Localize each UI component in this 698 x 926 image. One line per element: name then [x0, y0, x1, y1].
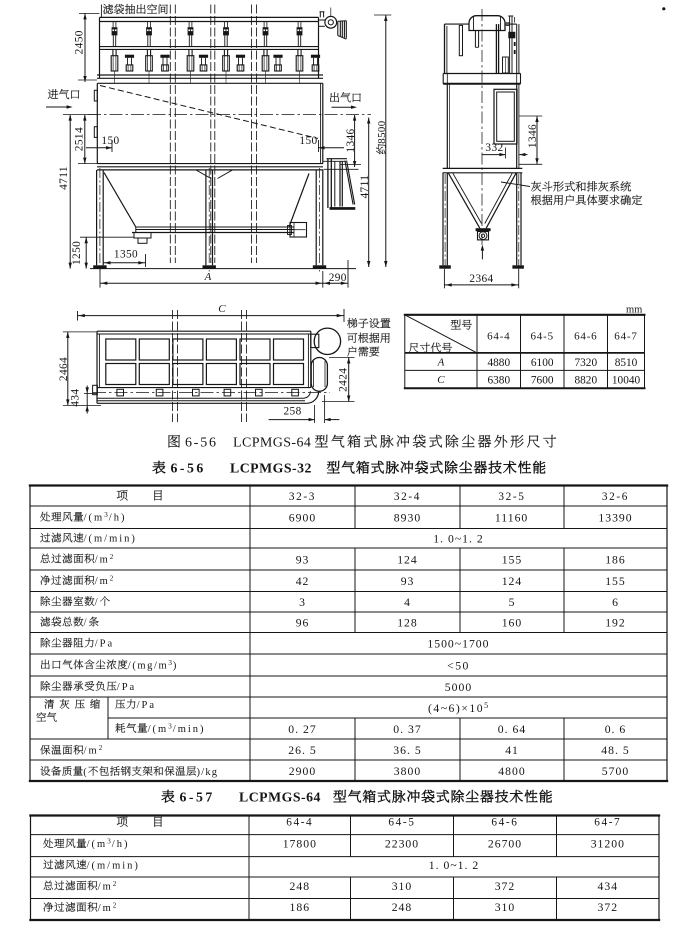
- svg-text:17800: 17800: [283, 838, 317, 851]
- svg-text:41: 41: [505, 744, 519, 757]
- svg-text:4: 4: [404, 596, 411, 609]
- svg-text:<50: <50: [447, 659, 470, 672]
- svg-text:128: 128: [397, 617, 418, 630]
- svg-text:/: /: [95, 597, 100, 608]
- svg-text:48. 5: 48. 5: [601, 744, 629, 757]
- svg-text:11160: 11160: [495, 512, 528, 525]
- svg-text:)/kg: )/kg: [197, 767, 219, 778]
- svg-text:6900: 6900: [289, 512, 316, 525]
- svg-text:/m: /m: [95, 554, 110, 565]
- svg-text:C: C: [437, 374, 445, 386]
- svg-text:2: 2: [99, 744, 104, 752]
- svg-text:290: 290: [329, 272, 347, 284]
- svg-text:LCPMGS-64: LCPMGS-64: [239, 790, 321, 805]
- svg-text:0. 27: 0. 27: [288, 723, 316, 736]
- svg-text:2900: 2900: [289, 765, 316, 778]
- svg-text:(4~6)×10: (4~6)×10: [428, 702, 484, 715]
- svg-text:5: 5: [484, 701, 489, 710]
- svg-text:26. 5: 26. 5: [288, 744, 316, 757]
- svg-text:93: 93: [401, 575, 415, 588]
- svg-text:6-57: 6-57: [180, 790, 215, 805]
- svg-text:2: 2: [113, 880, 118, 888]
- svg-text:7600: 7600: [531, 375, 554, 387]
- svg-text:0. 6: 0. 6: [605, 723, 627, 736]
- svg-text:13390: 13390: [598, 512, 632, 525]
- svg-text:96: 96: [296, 617, 310, 630]
- svg-text:64-6: 64-6: [491, 817, 518, 829]
- svg-text:186: 186: [290, 901, 311, 914]
- svg-text:6100: 6100: [531, 357, 554, 369]
- svg-text:/(m/min): /(m/min): [84, 534, 137, 545]
- svg-text:/Pa: /Pa: [95, 639, 114, 650]
- svg-text:36. 5: 36. 5: [393, 744, 421, 757]
- svg-text:3: 3: [299, 596, 306, 609]
- svg-text:5000: 5000: [445, 681, 472, 694]
- svg-text:434: 434: [70, 389, 82, 407]
- svg-text:2424: 2424: [337, 368, 349, 392]
- svg-text:32-3: 32-3: [289, 491, 316, 503]
- svg-text:1346: 1346: [527, 124, 539, 148]
- svg-text:LCPMGS-32: LCPMGS-32: [230, 461, 312, 476]
- svg-text:2: 2: [113, 901, 118, 909]
- svg-text:2364: 2364: [469, 273, 493, 285]
- svg-text:258: 258: [284, 406, 302, 418]
- svg-text:8930: 8930: [394, 512, 421, 525]
- svg-text:/(m: /(m: [84, 513, 105, 524]
- svg-text:1346: 1346: [345, 128, 357, 152]
- svg-text:192: 192: [605, 617, 626, 630]
- svg-text:372: 372: [495, 880, 516, 893]
- svg-text:64-7: 64-7: [614, 331, 637, 343]
- svg-text:5: 5: [509, 596, 516, 609]
- svg-text:2: 2: [110, 553, 115, 561]
- svg-text:/: /: [84, 618, 89, 629]
- svg-text:93: 93: [296, 553, 310, 566]
- svg-text:4880: 4880: [488, 357, 511, 369]
- svg-text:32-5: 32-5: [498, 491, 525, 503]
- svg-text:/h): /h): [112, 839, 130, 850]
- svg-text:0. 64: 0. 64: [498, 723, 526, 736]
- svg-text:64-6: 64-6: [574, 331, 597, 343]
- svg-text:10040: 10040: [612, 375, 641, 387]
- svg-text:31200: 31200: [591, 838, 625, 851]
- svg-text:/(m: /(m: [87, 839, 108, 850]
- svg-text:310: 310: [392, 880, 413, 893]
- svg-text:8500: 8500: [376, 120, 388, 143]
- svg-text:64-7: 64-7: [594, 817, 621, 829]
- svg-text:32-6: 32-6: [602, 491, 629, 503]
- svg-text:248: 248: [290, 880, 311, 893]
- svg-text:64-5: 64-5: [531, 331, 554, 343]
- svg-text:/(m/min): /(m/min): [87, 860, 140, 871]
- svg-text:0. 37: 0. 37: [393, 723, 421, 736]
- svg-text:/m: /m: [95, 576, 110, 587]
- svg-text:6: 6: [612, 596, 619, 609]
- svg-text:/m: /m: [98, 903, 113, 914]
- svg-text:32-4: 32-4: [394, 491, 421, 503]
- svg-text:/(mg/m: /(mg/m: [128, 660, 169, 671]
- svg-text:248: 248: [392, 901, 413, 914]
- svg-text:/m: /m: [98, 881, 113, 892]
- svg-text:434: 434: [598, 880, 619, 893]
- svg-text:4711: 4711: [58, 166, 70, 190]
- svg-text:2450: 2450: [74, 30, 86, 54]
- svg-text:3800: 3800: [394, 765, 421, 778]
- svg-text:372: 372: [598, 901, 619, 914]
- svg-text:150: 150: [299, 135, 317, 147]
- svg-text:/Pa: /Pa: [117, 682, 136, 693]
- svg-text:A: A: [204, 271, 212, 283]
- svg-text:1. 0~1. 2: 1. 0~1. 2: [429, 859, 479, 872]
- svg-text:64-4: 64-4: [286, 817, 313, 829]
- svg-text:/Pa: /Pa: [137, 700, 156, 711]
- svg-text:2: 2: [110, 575, 115, 583]
- svg-text:310: 310: [495, 901, 516, 914]
- svg-text:124: 124: [502, 575, 523, 588]
- svg-text:8510: 8510: [615, 357, 638, 369]
- svg-text:155: 155: [605, 575, 626, 588]
- svg-text:160: 160: [502, 617, 523, 630]
- svg-text:/min): /min): [173, 724, 206, 735]
- svg-text:): ): [173, 660, 178, 671]
- svg-text:/(m: /(m: [148, 724, 169, 735]
- svg-text:42: 42: [296, 575, 310, 588]
- svg-text:LCPMGS-64: LCPMGS-64: [233, 436, 311, 451]
- svg-text:2514: 2514: [74, 127, 86, 151]
- svg-text:1350: 1350: [114, 249, 138, 261]
- svg-text:6380: 6380: [488, 375, 511, 387]
- svg-text:26700: 26700: [488, 838, 522, 851]
- svg-text:2464: 2464: [58, 357, 70, 381]
- svg-text:155: 155: [502, 553, 523, 566]
- svg-text:/m: /m: [84, 746, 99, 757]
- svg-text:6-56: 6-56: [185, 436, 218, 451]
- svg-text:150: 150: [101, 135, 119, 147]
- svg-text:186: 186: [605, 553, 626, 566]
- svg-text:1500~1700: 1500~1700: [427, 638, 489, 651]
- svg-text:A: A: [437, 356, 445, 368]
- svg-text:4800: 4800: [498, 765, 525, 778]
- svg-text:6-56: 6-56: [171, 461, 206, 476]
- svg-text:1. 0~1. 2: 1. 0~1. 2: [433, 533, 483, 546]
- svg-text:(: (: [83, 767, 88, 778]
- svg-text:64-5: 64-5: [388, 817, 415, 829]
- svg-text:332: 332: [485, 142, 503, 154]
- svg-text:22300: 22300: [385, 838, 419, 851]
- svg-text:124: 124: [397, 553, 418, 566]
- svg-text:4711: 4711: [359, 175, 371, 199]
- svg-text:1250: 1250: [71, 241, 83, 265]
- svg-text:7320: 7320: [575, 357, 598, 369]
- svg-text:8820: 8820: [575, 375, 598, 387]
- svg-text:64-4: 64-4: [487, 331, 510, 343]
- svg-text:5700: 5700: [602, 765, 629, 778]
- svg-text:C: C: [218, 303, 226, 315]
- svg-text:/h): /h): [109, 513, 127, 524]
